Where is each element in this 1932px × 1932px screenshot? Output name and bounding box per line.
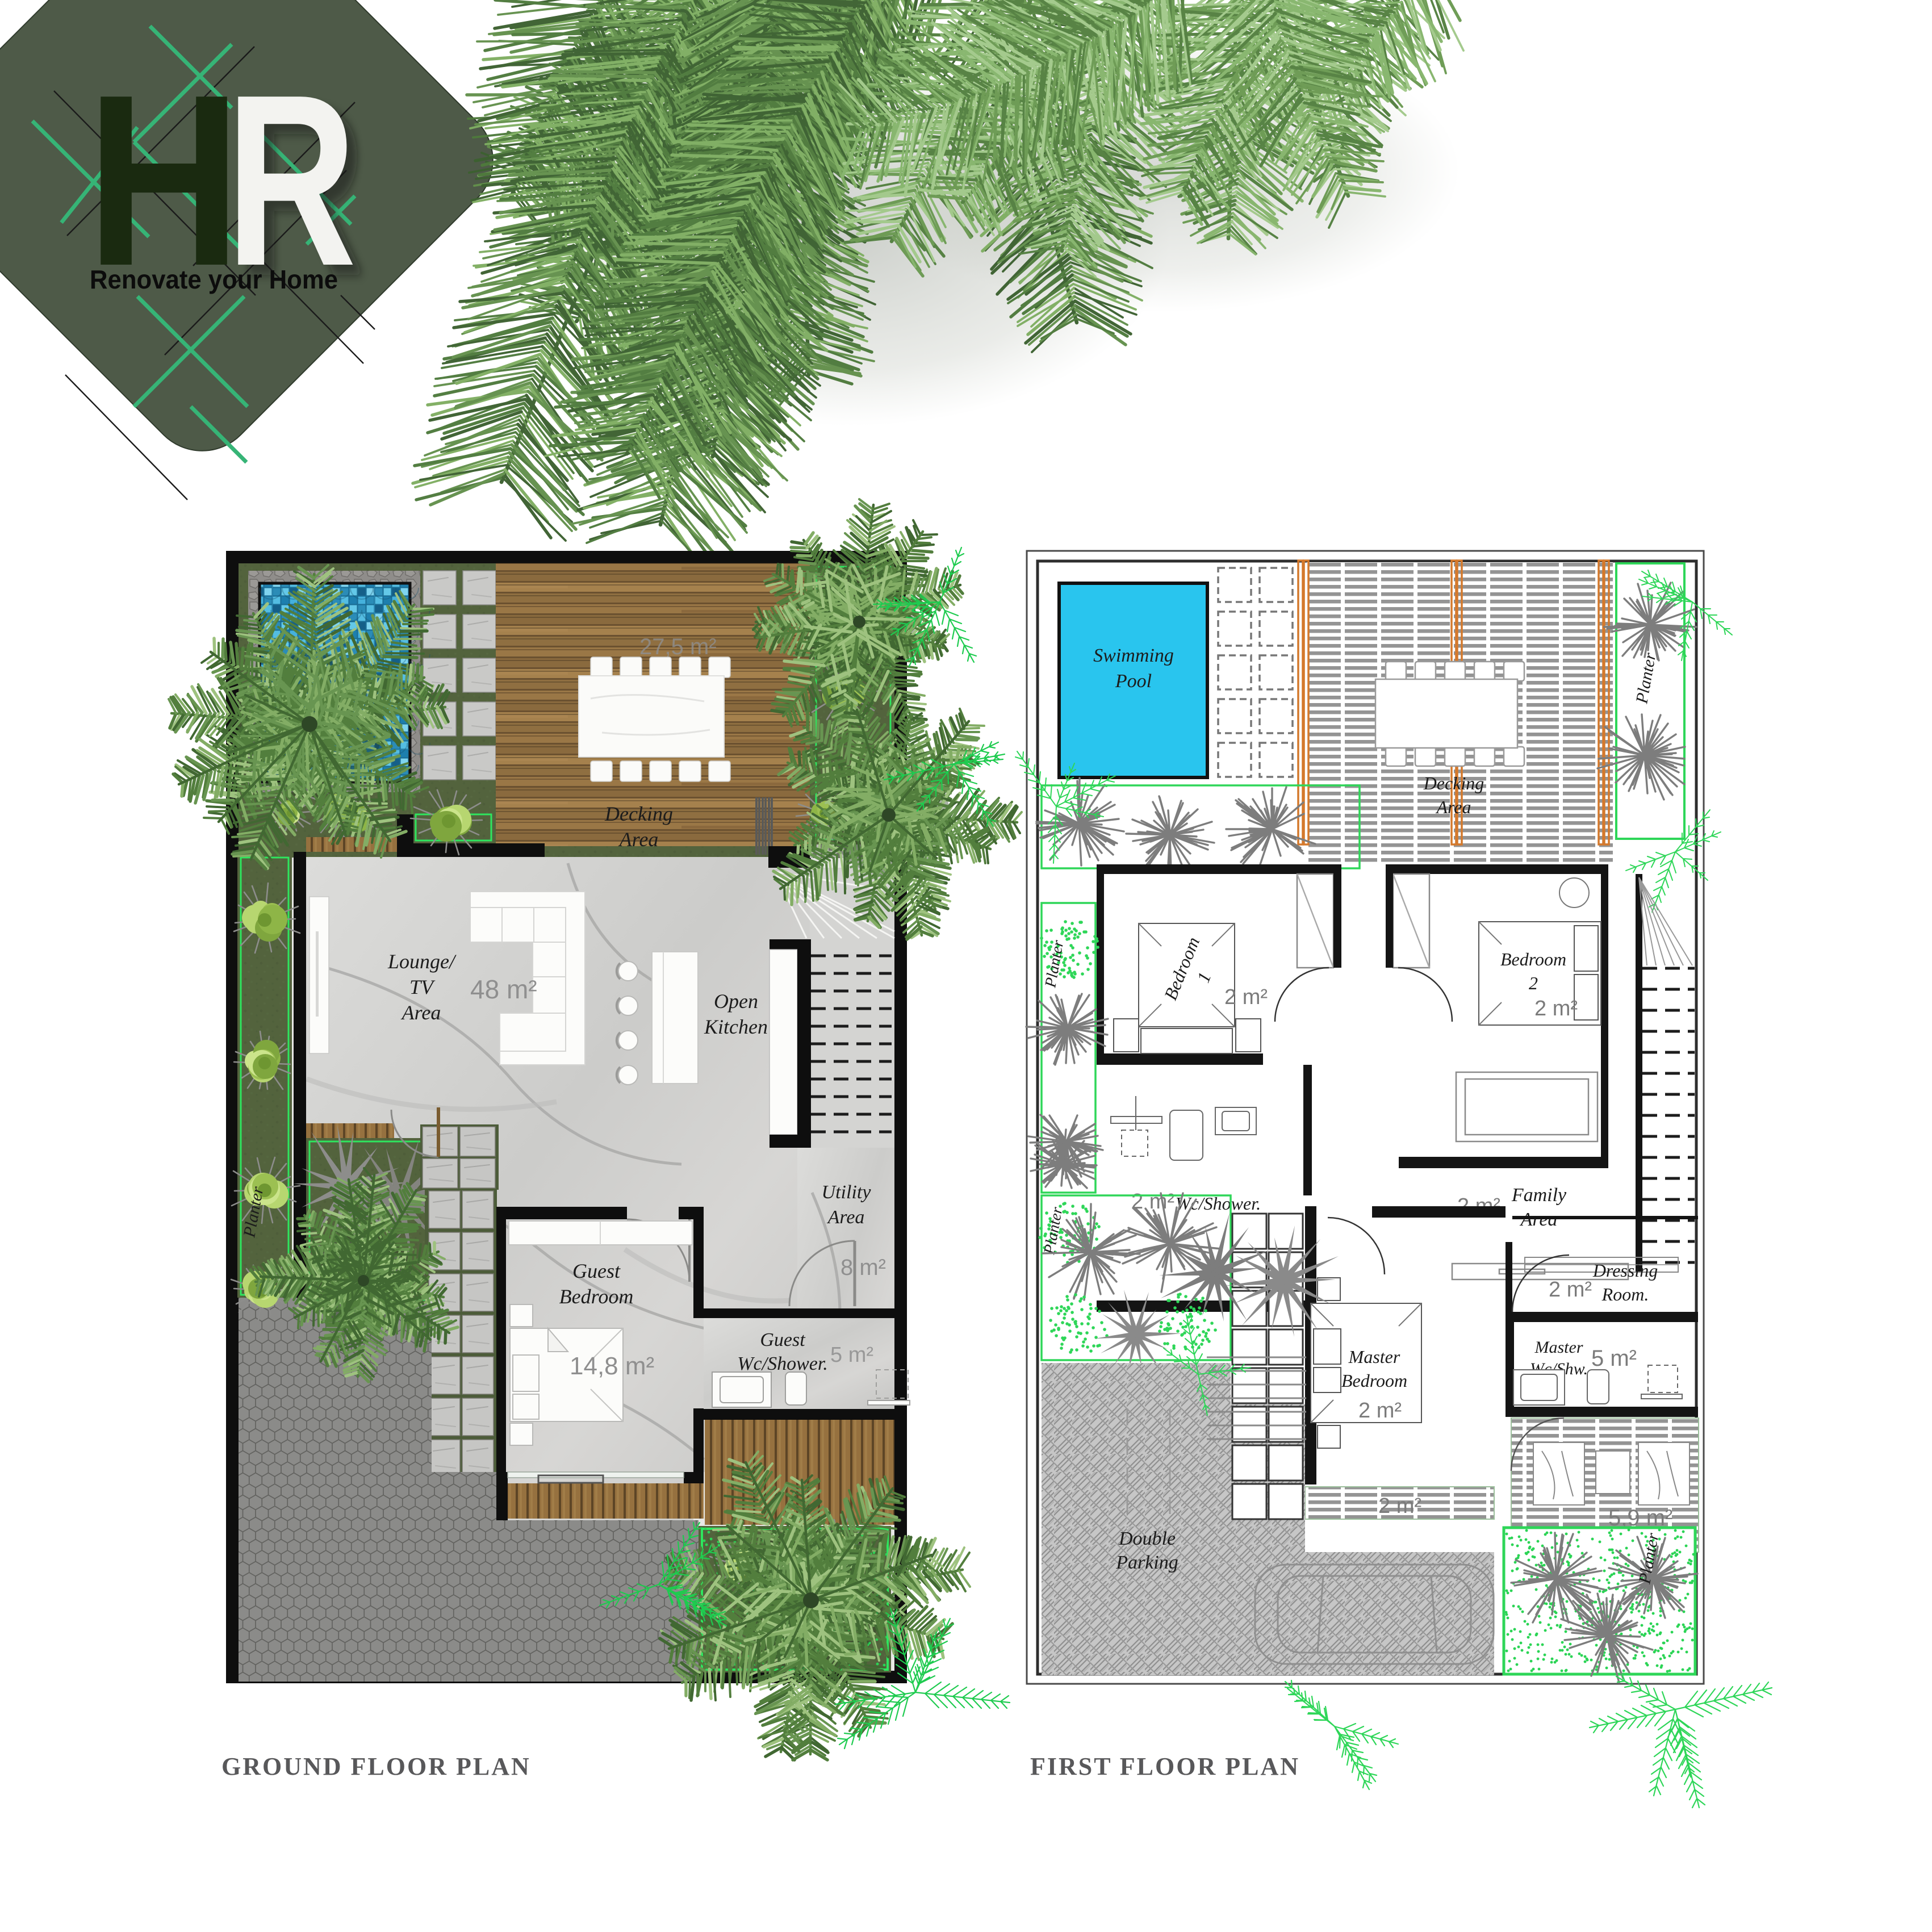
svg-text:Master: Master xyxy=(1534,1338,1583,1357)
svg-text:2 m²: 2 m² xyxy=(1534,997,1578,1021)
svg-text:Double: Double xyxy=(1118,1528,1176,1549)
svg-text:2 m²: 2 m² xyxy=(1224,985,1268,1009)
svg-text:Bedroom: Bedroom xyxy=(1341,1370,1407,1391)
svg-text:Decking: Decking xyxy=(1423,773,1484,793)
svg-text:Area: Area xyxy=(401,1001,441,1024)
svg-text:Open: Open xyxy=(714,990,758,1013)
svg-text:FIRST FLOOR PLAN: FIRST FLOOR PLAN xyxy=(1030,1753,1300,1780)
svg-text:Wc/Shower.: Wc/Shower. xyxy=(737,1353,828,1374)
svg-text:5 m²: 5 m² xyxy=(830,1343,873,1367)
svg-text:2 m²: 2 m² xyxy=(1549,1278,1592,1302)
svg-text:Decking: Decking xyxy=(604,802,673,825)
svg-text:Pool: Pool xyxy=(1115,671,1152,692)
svg-text:Renovate your Home: Renovate your Home xyxy=(90,265,338,294)
svg-text:2: 2 xyxy=(1529,973,1538,993)
svg-text:Area: Area xyxy=(618,828,659,851)
svg-text:Lounge/: Lounge/ xyxy=(387,950,457,973)
svg-text:14,8 m²: 14,8 m² xyxy=(570,1352,654,1380)
svg-text:Area: Area xyxy=(1435,797,1471,817)
svg-text:Bedroom: Bedroom xyxy=(559,1285,634,1308)
svg-text:Guest: Guest xyxy=(760,1329,806,1350)
svg-text:48 m²: 48 m² xyxy=(470,975,537,1004)
svg-text:Bedroom: Bedroom xyxy=(1500,949,1566,969)
svg-text:GROUND FLOOR PLAN: GROUND FLOOR PLAN xyxy=(221,1753,531,1780)
svg-text:Family: Family xyxy=(1511,1185,1567,1206)
svg-text:2 m²: 2 m² xyxy=(1358,1399,1402,1423)
svg-text:5 m²: 5 m² xyxy=(1591,1346,1637,1371)
svg-text:8 m²: 8 m² xyxy=(840,1255,886,1280)
svg-text:TV: TV xyxy=(409,976,436,998)
svg-text:Area: Area xyxy=(1520,1209,1558,1230)
svg-text:Guest: Guest xyxy=(572,1260,621,1282)
svg-text:Kitchen: Kitchen xyxy=(704,1015,768,1038)
svg-text:Dressing: Dressing xyxy=(1592,1260,1658,1281)
svg-text:Room.: Room. xyxy=(1601,1284,1649,1304)
svg-text:27,5 m²: 27,5 m² xyxy=(639,634,717,659)
svg-text:Master: Master xyxy=(1348,1346,1400,1367)
svg-text:2 m²: 2 m² xyxy=(1378,1494,1421,1518)
svg-text:Parking: Parking xyxy=(1115,1552,1178,1573)
svg-text:Swimming: Swimming xyxy=(1093,645,1174,666)
